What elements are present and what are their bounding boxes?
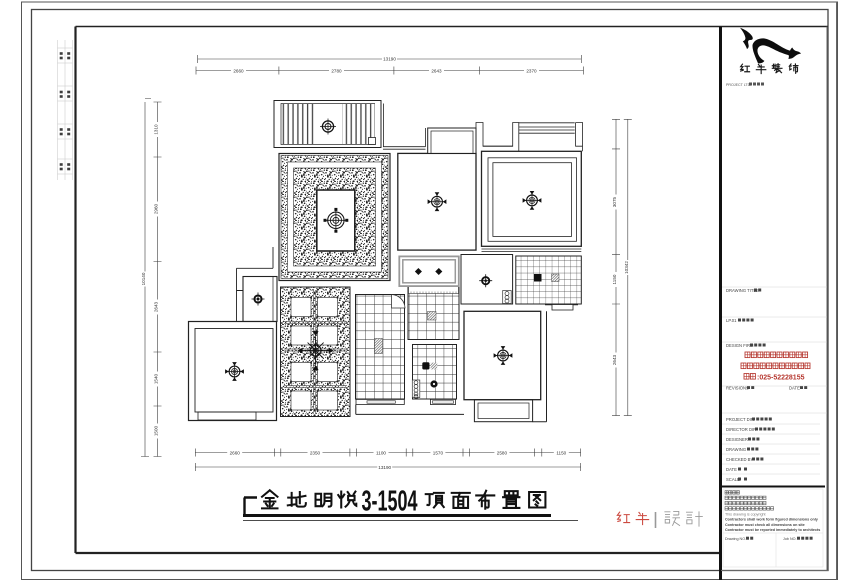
svg-text:DESIGNER: DESIGNER xyxy=(726,437,748,442)
svg-text:3-1504: 3-1504 xyxy=(362,485,418,517)
svg-text:2370: 2370 xyxy=(526,68,537,73)
svg-text:Job NO.: Job NO. xyxy=(783,537,797,541)
svg-text:2660: 2660 xyxy=(233,68,244,73)
svg-text:2660: 2660 xyxy=(230,451,241,456)
svg-text:DIRECTOR DIR: DIRECTOR DIR xyxy=(726,427,756,432)
svg-text::025-52228155: :025-52228155 xyxy=(757,374,805,381)
svg-text:2960: 2960 xyxy=(153,203,158,214)
svg-text:3075: 3075 xyxy=(612,196,617,207)
svg-text:10140: 10140 xyxy=(141,272,146,285)
svg-text:SCALE: SCALE xyxy=(726,477,740,482)
svg-text:LP.01: LP.01 xyxy=(726,318,737,323)
svg-text:DESIGN FIRM: DESIGN FIRM xyxy=(726,343,754,348)
svg-text:This drawing is copyright: This drawing is copyright xyxy=(725,513,766,517)
svg-text:2580: 2580 xyxy=(497,451,508,456)
svg-text:DRAWING: DRAWING xyxy=(726,447,746,452)
svg-text:1310: 1310 xyxy=(153,124,158,135)
svg-text:2643: 2643 xyxy=(431,68,442,73)
svg-text:PROJECT DIR: PROJECT DIR xyxy=(726,417,754,422)
svg-text:1150: 1150 xyxy=(556,451,566,456)
svg-text:Drawing NO.: Drawing NO. xyxy=(725,537,746,541)
svg-text:Contractors shall work form fi: Contractors shall work form figured dime… xyxy=(725,518,819,522)
svg-text:13190: 13190 xyxy=(383,57,396,62)
svg-text:2643: 2643 xyxy=(612,354,617,365)
svg-text:2643: 2643 xyxy=(153,301,158,312)
svg-text:1100: 1100 xyxy=(376,451,386,456)
svg-text:10342: 10342 xyxy=(624,261,629,274)
svg-text:1570: 1570 xyxy=(433,451,444,456)
svg-text:Contractor must check all dime: Contractor must check all dimensions on … xyxy=(725,523,805,527)
svg-text:REVISIONS: REVISIONS xyxy=(726,386,749,391)
svg-text:1540: 1540 xyxy=(153,373,158,384)
svg-text:PROJECT LTD.: PROJECT LTD. xyxy=(726,83,751,87)
svg-text:DATE: DATE xyxy=(726,467,737,472)
svg-text:2350: 2350 xyxy=(310,451,321,456)
svg-text:Contractor must be reported im: Contractor must be reported immediately … xyxy=(725,528,820,532)
svg-text:13190: 13190 xyxy=(378,465,391,470)
svg-text:1500: 1500 xyxy=(153,425,158,436)
svg-text:CHECKED BY: CHECKED BY xyxy=(726,457,753,462)
svg-text:DRAWING TITLE: DRAWING TITLE xyxy=(726,288,759,293)
svg-text:1150: 1150 xyxy=(612,274,617,284)
svg-text:2780: 2780 xyxy=(331,68,342,73)
svg-text:DATE: DATE xyxy=(789,386,800,391)
